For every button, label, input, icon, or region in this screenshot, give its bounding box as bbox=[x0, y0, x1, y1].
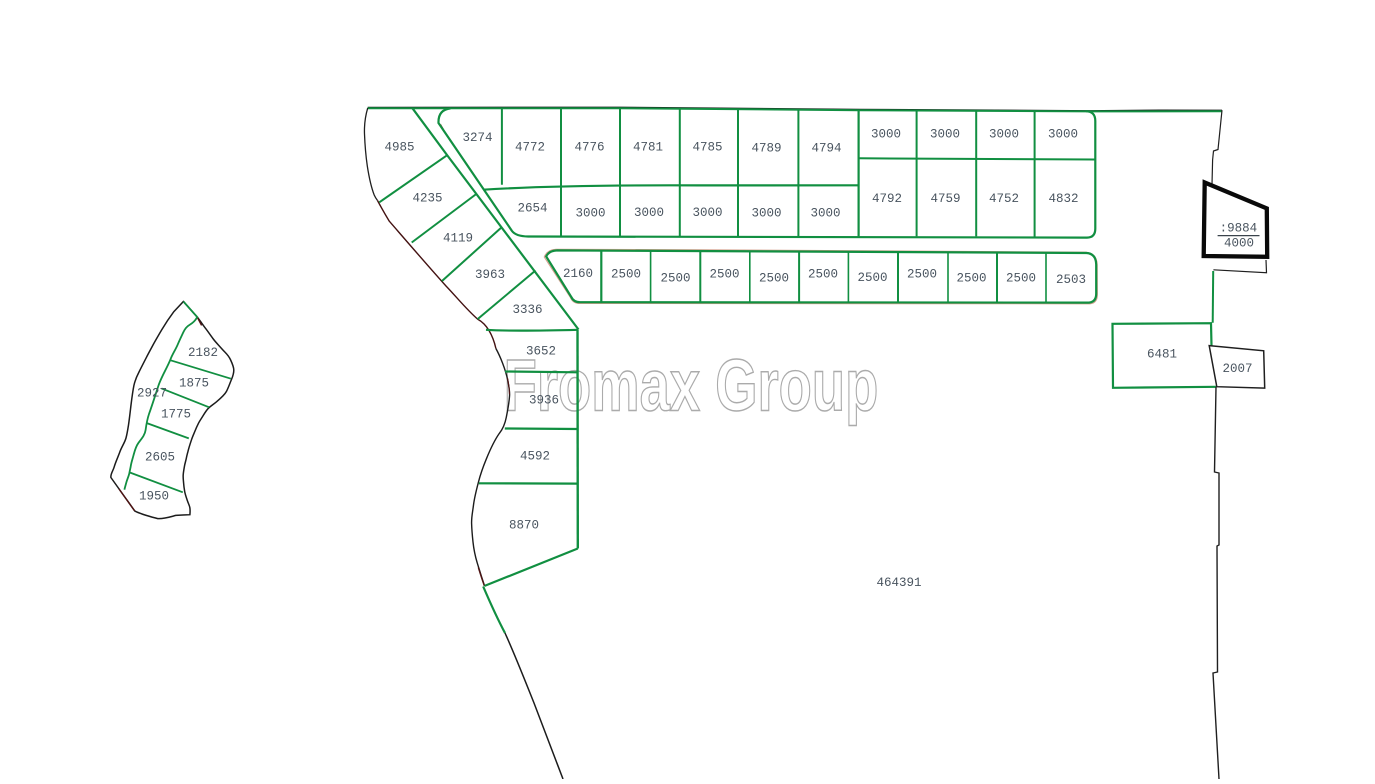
svg-text:4781: 4781 bbox=[633, 140, 663, 154]
svg-text:3000: 3000 bbox=[989, 127, 1019, 141]
svg-text:6481: 6481 bbox=[1147, 348, 1177, 362]
svg-text:2500: 2500 bbox=[1006, 271, 1036, 285]
svg-text:2500: 2500 bbox=[907, 267, 937, 281]
svg-text:3000: 3000 bbox=[634, 206, 664, 220]
svg-text:2927: 2927 bbox=[137, 386, 167, 400]
svg-text:4792: 4792 bbox=[872, 192, 902, 206]
svg-text:2503: 2503 bbox=[1056, 273, 1086, 287]
svg-text:2160: 2160 bbox=[563, 267, 593, 281]
svg-text:3000: 3000 bbox=[930, 127, 960, 141]
svg-text:2500: 2500 bbox=[660, 271, 690, 285]
svg-text:2500: 2500 bbox=[857, 271, 887, 285]
svg-text:3936: 3936 bbox=[529, 393, 559, 407]
svg-text:4785: 4785 bbox=[692, 140, 722, 154]
svg-text:1950: 1950 bbox=[139, 489, 169, 503]
svg-text:3274: 3274 bbox=[462, 131, 492, 145]
svg-text:3336: 3336 bbox=[512, 303, 542, 317]
svg-text:3000: 3000 bbox=[575, 206, 605, 220]
svg-text:4772: 4772 bbox=[515, 140, 545, 154]
svg-text:2500: 2500 bbox=[759, 271, 789, 285]
svg-text:Fromax Group: Fromax Group bbox=[504, 345, 879, 427]
svg-text::9884: :9884 bbox=[1220, 221, 1258, 235]
svg-text:2654: 2654 bbox=[517, 201, 547, 215]
svg-text:4832: 4832 bbox=[1048, 192, 1078, 206]
svg-text:4592: 4592 bbox=[520, 449, 550, 463]
svg-text:4235: 4235 bbox=[412, 191, 442, 205]
svg-text:4789: 4789 bbox=[751, 141, 781, 155]
svg-text:2500: 2500 bbox=[808, 267, 838, 281]
svg-text:3000: 3000 bbox=[751, 206, 781, 220]
svg-text:4000: 4000 bbox=[1224, 236, 1254, 250]
svg-text:2605: 2605 bbox=[145, 450, 175, 464]
svg-text:1775: 1775 bbox=[161, 407, 191, 421]
svg-text:3652: 3652 bbox=[526, 344, 556, 358]
svg-text:8870: 8870 bbox=[509, 518, 539, 532]
svg-text:4119: 4119 bbox=[443, 231, 473, 245]
svg-text:2500: 2500 bbox=[956, 271, 986, 285]
svg-text:4759: 4759 bbox=[930, 192, 960, 206]
svg-text:3000: 3000 bbox=[692, 206, 722, 220]
svg-text:464391: 464391 bbox=[876, 576, 921, 590]
svg-text:4752: 4752 bbox=[989, 192, 1019, 206]
svg-text:2182: 2182 bbox=[188, 346, 218, 360]
svg-text:2007: 2007 bbox=[1222, 362, 1252, 376]
svg-text:4985: 4985 bbox=[384, 140, 414, 154]
svg-text:3000: 3000 bbox=[810, 206, 840, 220]
svg-text:1875: 1875 bbox=[179, 376, 209, 390]
svg-text:4776: 4776 bbox=[574, 140, 604, 154]
svg-text:3963: 3963 bbox=[475, 268, 505, 282]
svg-text:4794: 4794 bbox=[811, 141, 841, 155]
svg-text:3000: 3000 bbox=[1048, 127, 1078, 141]
svg-text:3000: 3000 bbox=[871, 127, 901, 141]
svg-text:2500: 2500 bbox=[709, 267, 739, 281]
svg-text:2500: 2500 bbox=[611, 267, 641, 281]
